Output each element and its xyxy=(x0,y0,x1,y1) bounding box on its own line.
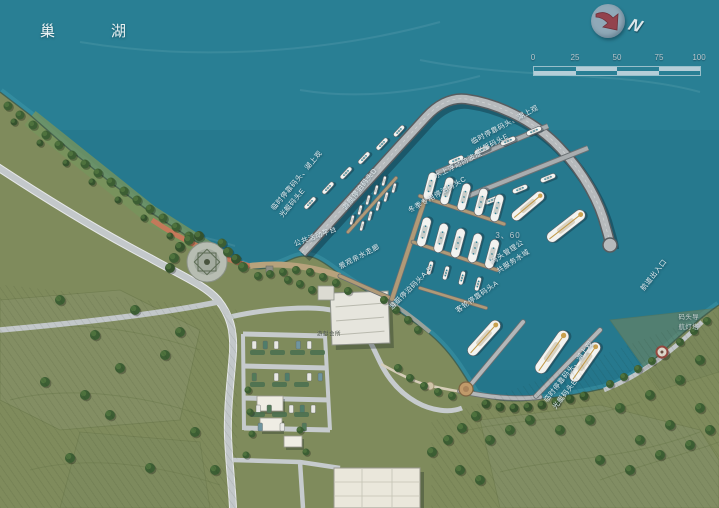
north-arrow-circle xyxy=(591,4,625,38)
scale-tick-75: 75 xyxy=(655,53,664,62)
scale-tick-25: 25 xyxy=(571,53,580,62)
scale-bar: 0 25 50 75 100 xyxy=(533,53,701,77)
north-arrow: N xyxy=(585,2,655,44)
north-label: N xyxy=(625,15,645,37)
marina-site-plan: 巢湖 临时停靠码头、湖上观 光艇码头E 临时停靠码头、湖上观 光艇码头E 临时停… xyxy=(0,0,719,508)
scale-tick-50: 50 xyxy=(613,53,622,62)
scale-tick-100: 100 xyxy=(692,53,705,62)
scale-bar-segments xyxy=(533,66,701,76)
north-arrow-icon xyxy=(591,4,625,38)
scale-tick-0: 0 xyxy=(531,53,535,62)
